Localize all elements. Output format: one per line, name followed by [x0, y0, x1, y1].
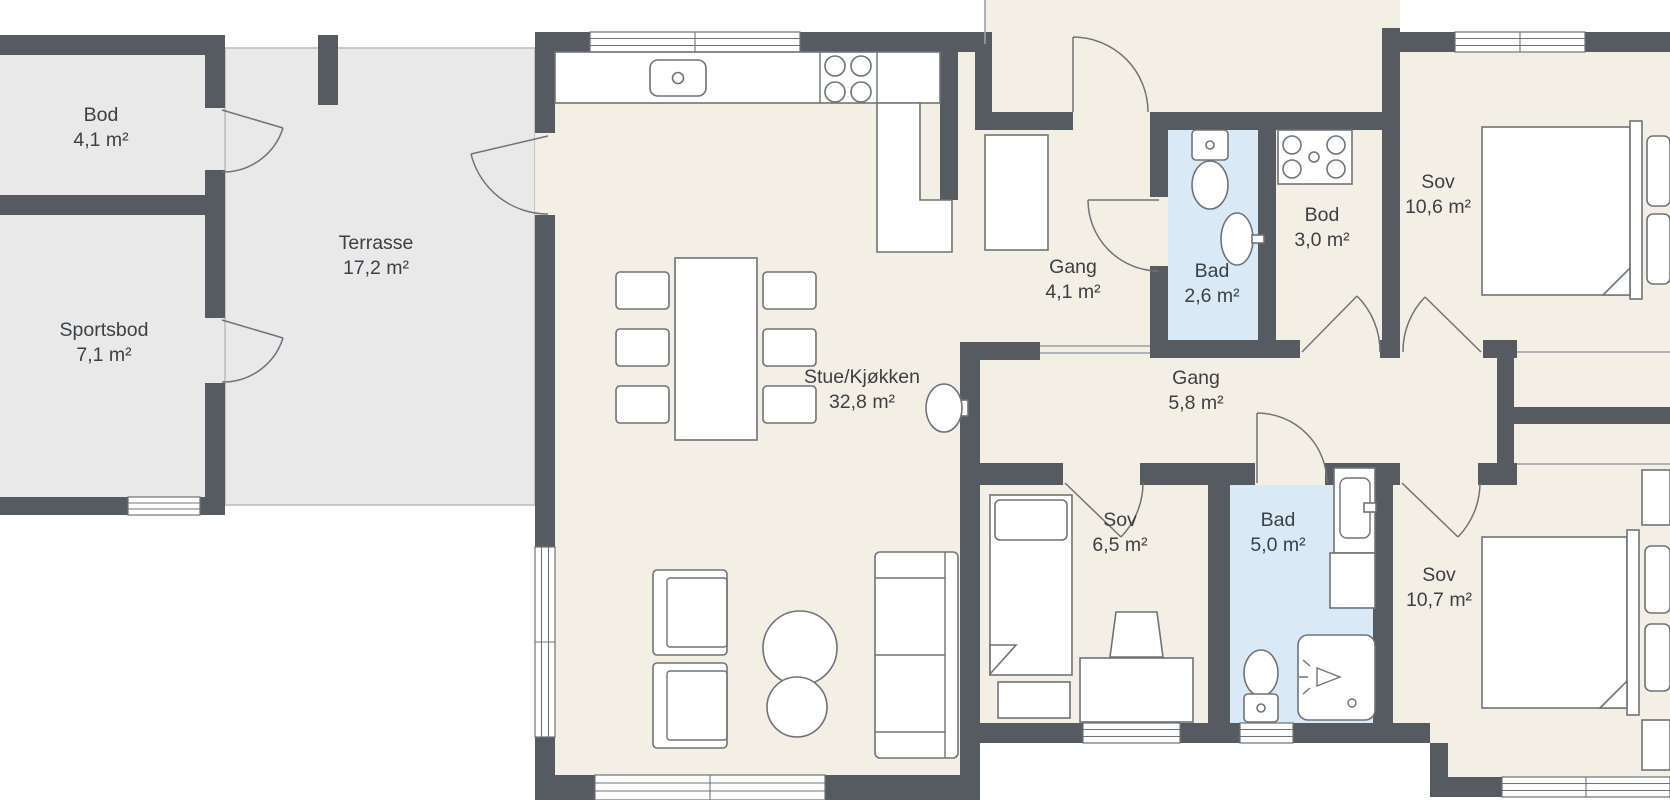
room-label-bod-outbuilding: Bod 4,1 m²: [73, 103, 128, 153]
toilet-icon: [1192, 130, 1228, 209]
room-name: Bad: [1250, 508, 1305, 533]
dining-chair-icon: [616, 272, 669, 309]
room-name: Gang: [1168, 366, 1223, 391]
window-icon: [128, 497, 200, 515]
bedroom-ne-furniture: [1482, 121, 1670, 299]
room-name: Sov: [1092, 508, 1147, 533]
room-label-gang-hall: Gang 5,8 m²: [1168, 366, 1223, 416]
single-bed-icon: [990, 495, 1072, 718]
room-area: 6,5 m²: [1092, 533, 1147, 558]
window-icon: [595, 775, 825, 800]
window-icon: [590, 32, 800, 52]
room-name: Stue/Kjøkken: [804, 365, 920, 390]
nightstand-icon: [1642, 470, 1670, 525]
floor-plan: Bod 4,1 m² Sportsbod 7,1 m² Terrasse 17,…: [0, 0, 1670, 800]
room-label-sov-mid: Sov 6,5 m²: [1092, 508, 1147, 558]
room-label-terrasse: Terrasse 17,2 m²: [339, 231, 414, 281]
dining-chair-icon: [763, 329, 816, 366]
dining-chair-icon: [616, 329, 669, 366]
nightstand-icon: [1642, 720, 1670, 770]
room-label-sov-ne: Sov 10,6 m²: [1405, 170, 1471, 220]
entry-hall-furniture: [985, 135, 1048, 250]
shower-icon: [1298, 635, 1375, 720]
room-area: 4,1 m²: [1045, 280, 1100, 305]
room-name: Gang: [1045, 255, 1100, 280]
bathroom-cabinet-icon: [1334, 468, 1376, 553]
double-bed-icon: [1482, 121, 1670, 299]
room-label-bod-inner: Bod 3,0 m²: [1294, 203, 1349, 253]
desk-chair-icon: [1110, 612, 1163, 657]
room-area: 10,7 m²: [1406, 588, 1472, 613]
room-label-sov-se: Sov 10,7 m²: [1406, 563, 1472, 613]
dining-table-icon: [675, 258, 757, 440]
dining-set: [616, 258, 816, 440]
room-label-sportsbod: Sportsbod 7,1 m²: [60, 318, 149, 368]
room-area: 5,0 m²: [1250, 533, 1305, 558]
toilet-icon: [1244, 650, 1278, 722]
room-name: Bod: [73, 103, 128, 128]
dining-chair-icon: [763, 272, 816, 309]
room-name: Sov: [1406, 563, 1472, 588]
sofa-icon: [875, 552, 958, 758]
room-area: 4,1 m²: [73, 128, 128, 153]
room-area: 2,6 m²: [1184, 284, 1239, 309]
room-name: Terrasse: [339, 231, 414, 256]
room-name: Sov: [1405, 170, 1471, 195]
appliance-icon: [1278, 130, 1352, 184]
room-label-bad-small: Bad 2,6 m²: [1184, 259, 1239, 309]
room-name: Bad: [1184, 259, 1239, 284]
window-icon: [535, 547, 555, 737]
room-name: Sportsbod: [60, 318, 149, 343]
wardrobe-icon: [985, 135, 1048, 250]
armchair-icon: [653, 663, 727, 748]
room-label-bad-large: Bad 5,0 m²: [1250, 508, 1305, 558]
room-area: 17,2 m²: [339, 256, 414, 281]
window-icon: [1240, 723, 1293, 743]
window-icon: [1502, 777, 1670, 797]
kitchen-sink-icon: [650, 60, 706, 96]
room-area: 5,8 m²: [1168, 391, 1223, 416]
washing-machine-icon: [1330, 553, 1375, 608]
room-name: Bod: [1294, 203, 1349, 228]
bod-inner-fixtures: [1278, 130, 1352, 184]
room-area: 32,8 m²: [804, 390, 920, 415]
room-area: 3,0 m²: [1294, 228, 1349, 253]
room-area: 10,6 m²: [1405, 195, 1471, 220]
room-label-stue-kjokken: Stue/Kjøkken 32,8 m²: [804, 365, 920, 415]
dining-chair-icon: [616, 386, 669, 423]
window-icon: [1455, 32, 1585, 52]
room-label-gang-entry: Gang 4,1 m²: [1045, 255, 1100, 305]
desk-icon: [1080, 658, 1193, 722]
window-icon: [1083, 723, 1180, 743]
armchair-icon: [653, 570, 727, 655]
room-area: 7,1 m²: [60, 343, 149, 368]
